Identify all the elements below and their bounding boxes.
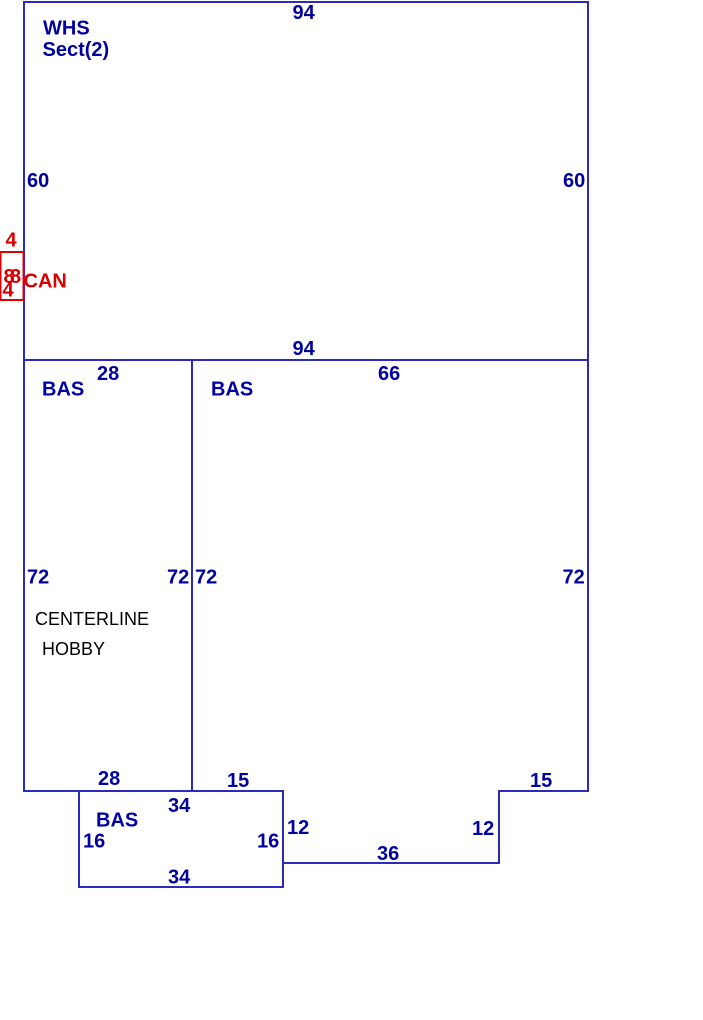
svg-text:16: 16 [83, 831, 105, 853]
svg-text:94: 94 [293, 2, 316, 24]
svg-text:15: 15 [227, 770, 249, 792]
svg-text:36: 36 [377, 843, 399, 865]
svg-text:BAS: BAS [42, 379, 84, 401]
svg-text:HOBBY: HOBBY [42, 639, 105, 659]
svg-text:WHS: WHS [43, 18, 90, 40]
svg-text:60: 60 [27, 170, 49, 192]
svg-text:34: 34 [168, 795, 191, 817]
svg-text:66: 66 [378, 363, 400, 385]
svg-text:94: 94 [293, 338, 316, 360]
svg-text:12: 12 [472, 818, 494, 840]
svg-text:28: 28 [97, 363, 119, 385]
svg-text:CAN: CAN [24, 271, 67, 293]
svg-text:72: 72 [563, 567, 585, 589]
svg-text:72: 72 [27, 567, 49, 589]
svg-text:BAS: BAS [211, 379, 253, 401]
svg-text:16: 16 [257, 831, 279, 853]
svg-text:15: 15 [530, 770, 552, 792]
svg-text:60: 60 [563, 170, 585, 192]
svg-text:CENTERLINE: CENTERLINE [35, 609, 149, 629]
svg-text:12: 12 [287, 817, 309, 839]
svg-text:72: 72 [167, 567, 189, 589]
svg-text:BAS: BAS [96, 810, 138, 832]
svg-text:Sect(2): Sect(2) [43, 39, 110, 61]
svg-text:4: 4 [6, 230, 18, 252]
svg-text:72: 72 [195, 567, 217, 589]
svg-text:4: 4 [3, 280, 15, 302]
svg-text:34: 34 [168, 867, 191, 889]
svg-text:28: 28 [98, 768, 120, 790]
